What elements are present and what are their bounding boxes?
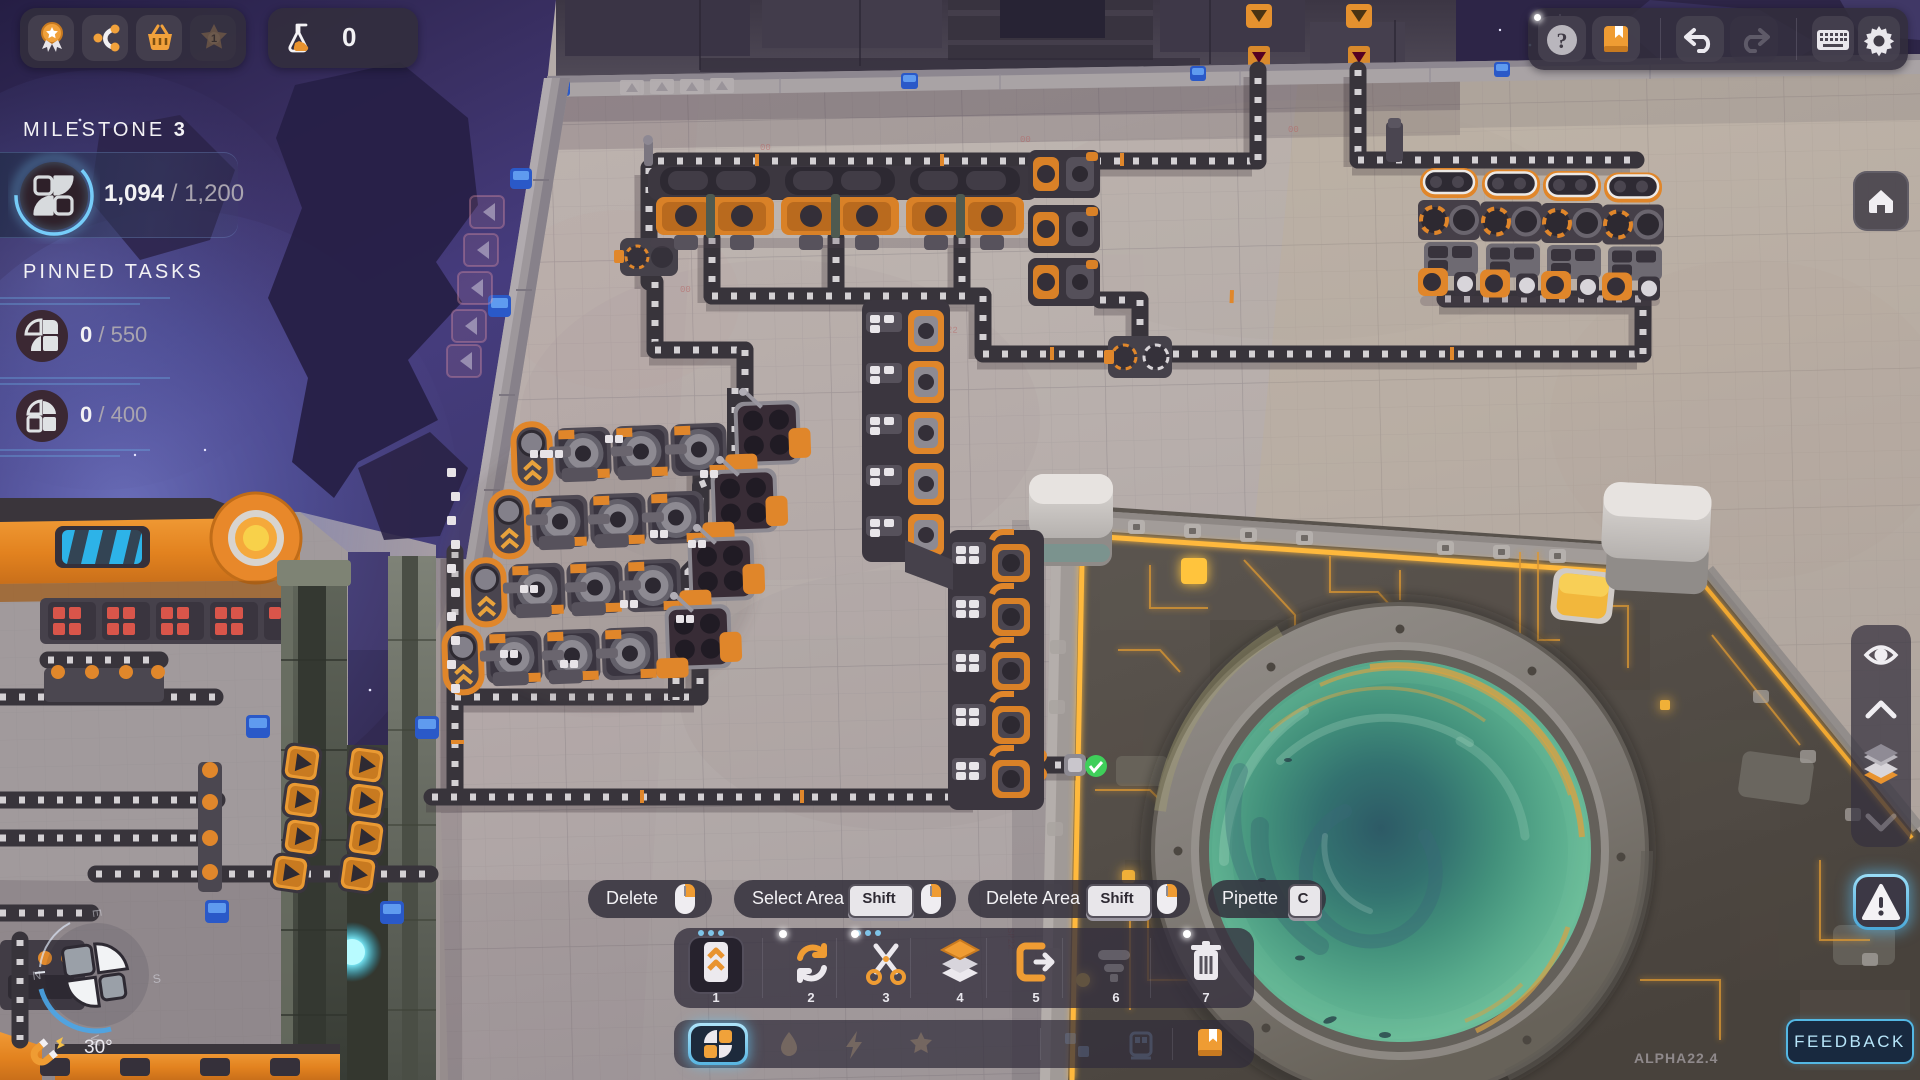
svg-text:1: 1 [211,33,217,45]
svg-text:S: S [152,971,162,986]
svg-text:E: E [90,908,105,918]
svg-text:?: ? [1557,28,1568,53]
svg-text:N: N [31,968,42,983]
